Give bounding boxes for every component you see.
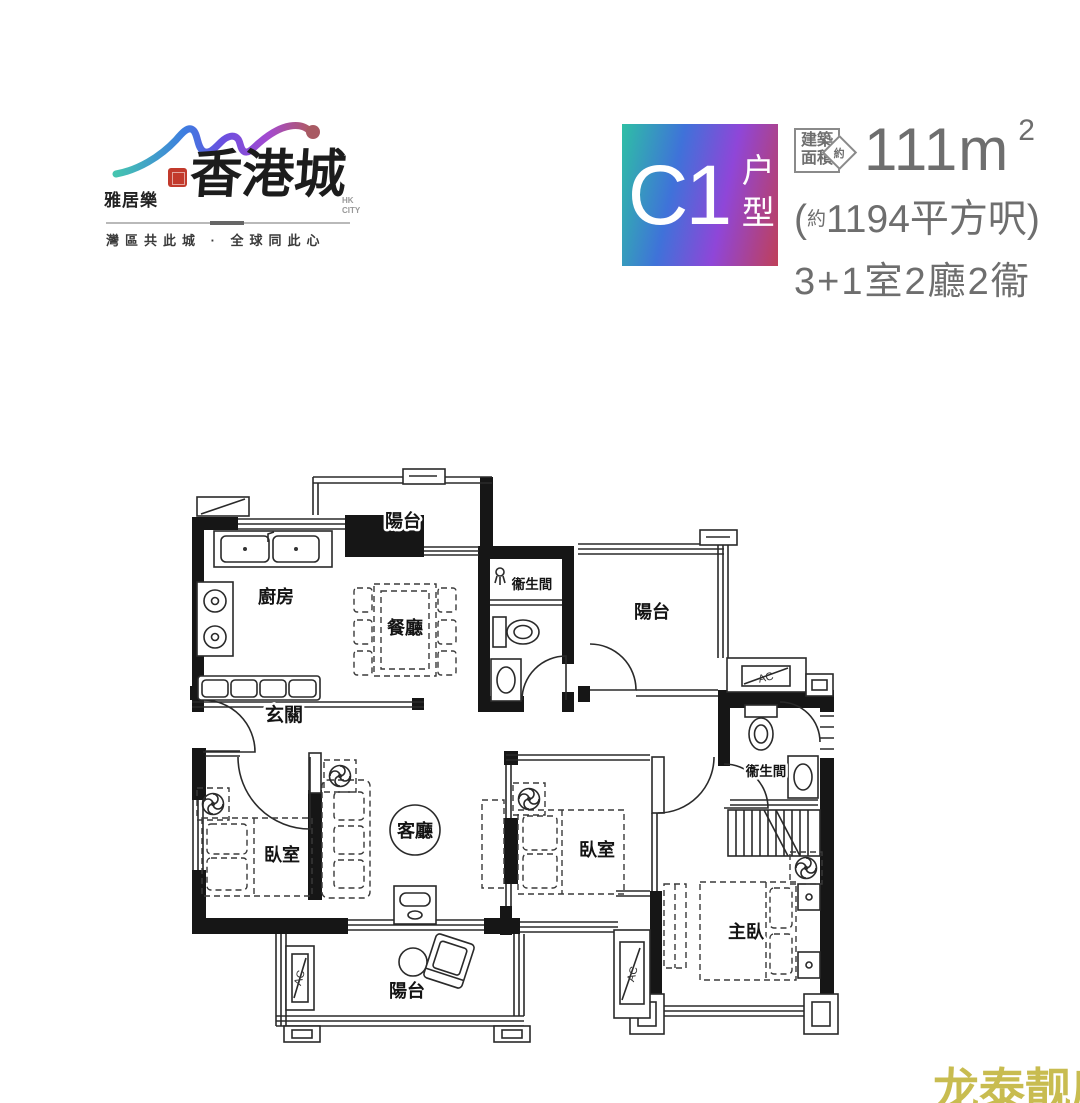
tv-stand <box>394 886 436 924</box>
balcony-table <box>399 948 427 976</box>
room-label-bedroom-left: 臥室 <box>264 844 300 865</box>
watermark: 龙泰靓房 <box>933 1054 1080 1103</box>
floorplan-poster: 雅居樂 香港城 HK CITY 灣區共此城 · 全球同此心 C1 户型 建築 面… <box>0 0 1080 1103</box>
room-label-bathroom-2: 衞生間 <box>745 763 787 779</box>
room-label-balcony-bottom: 陽台 <box>389 980 425 1001</box>
room-label-entry: 玄關 <box>265 703 303 726</box>
middle-bedroom-wardrobe <box>482 800 504 888</box>
kitchen-sink <box>214 531 332 567</box>
kitchen-stove <box>197 582 233 656</box>
balcony-chair <box>423 933 475 989</box>
nightstands <box>798 884 820 978</box>
fan-icon <box>324 760 356 792</box>
room-label-kitchen: 廚房 <box>258 586 294 607</box>
room-label-dining: 餐廳 <box>386 617 423 638</box>
room-label-bedroom-middle: 臥室 <box>579 839 615 860</box>
floor-plan: AC AC AC <box>0 0 1080 1103</box>
entry-cabinet <box>198 676 320 700</box>
wardrobe-hatch <box>728 810 820 856</box>
room-label-living: 客廳 <box>397 820 433 841</box>
room-label-bathroom-1: 衞生間 <box>511 576 553 592</box>
sofa <box>322 780 370 898</box>
room-label-master-bedroom: 主臥 <box>728 921 765 942</box>
room-label-balcony-right: 陽台 <box>634 601 670 622</box>
room-label-balcony-top: 陽台 <box>385 510 421 531</box>
bathroom2-fixtures <box>745 702 820 798</box>
